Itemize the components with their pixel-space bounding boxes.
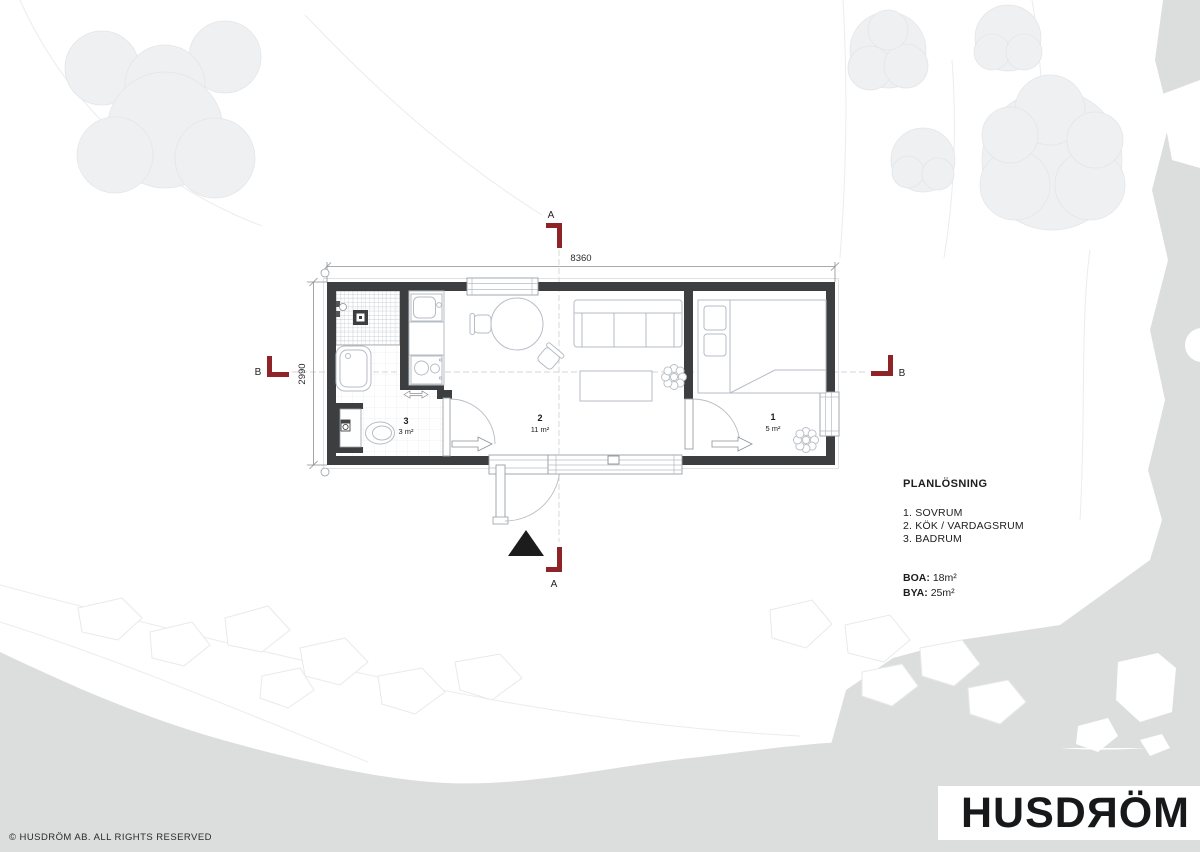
svg-text:1: 1	[770, 412, 775, 422]
room-label-2: 2 11 m²	[531, 413, 550, 434]
boa-value: 18m²	[933, 572, 957, 584]
shower	[335, 291, 400, 345]
legend-item: 1. SOVRUM	[903, 507, 1123, 520]
section-marker-b-left: B	[255, 356, 289, 378]
logo-text: HUSDЯÖM	[961, 789, 1190, 838]
boa-label: BOA:	[903, 572, 930, 584]
coffee-table	[580, 371, 652, 401]
toilet	[366, 422, 395, 444]
copyright: © HUSDRÖM AB. ALL RIGHTS RESERVED	[9, 832, 212, 843]
legend-areas: BOA:18m² BYA:25m²	[903, 571, 1123, 601]
cooktop	[411, 356, 442, 384]
svg-text:A: A	[548, 210, 555, 221]
svg-text:B: B	[255, 367, 262, 378]
site-plan-page: 1 5 m² 2 11 m² 3 3 m² 8360 2990 A	[0, 0, 1200, 852]
sofa	[574, 300, 682, 347]
kitchen-sink	[411, 294, 442, 321]
door-swing-arc	[450, 399, 495, 444]
washing-machine	[334, 403, 363, 453]
chair	[535, 342, 565, 372]
entrance-triangle-icon	[508, 530, 544, 556]
plant-icon	[662, 365, 687, 390]
dimension-left	[307, 278, 327, 469]
area-bya: BYA:25m²	[903, 586, 1123, 601]
window-bottom	[548, 455, 682, 474]
svg-text:11 m²: 11 m²	[531, 425, 550, 434]
window-right	[820, 392, 839, 436]
door-swing-arc	[693, 399, 740, 446]
window-handle-icon	[608, 456, 619, 464]
legend-items: 1. SOVRUM 2. KÖK / VARDAGSRUM 3. BADRUM	[903, 507, 1123, 546]
tree-icon	[848, 5, 1125, 230]
slide-arrow-icon	[712, 437, 752, 451]
legend-item: 3. BADRUM	[903, 533, 1123, 546]
section-marker-b-right: B	[871, 355, 906, 379]
tree-canopies	[65, 5, 1125, 230]
section-marker-a-bottom: A	[546, 547, 562, 590]
svg-text:3: 3	[403, 416, 408, 426]
chair	[470, 314, 491, 335]
plant-icon	[794, 428, 819, 453]
svg-text:5 m²: 5 m²	[766, 424, 782, 433]
bathtub	[336, 346, 371, 391]
section-marker-a-top: A	[546, 210, 562, 248]
bed	[698, 300, 826, 393]
svg-text:B: B	[899, 368, 906, 379]
slide-arrow-icon	[452, 437, 492, 451]
svg-text:A: A	[551, 579, 558, 590]
window-top	[467, 278, 538, 295]
svg-text:3 m²: 3 m²	[399, 427, 415, 436]
legend-title: PLANLÖSNING	[903, 478, 1123, 490]
bya-value: 25m²	[931, 587, 955, 599]
bedroom-door	[685, 399, 752, 451]
bya-label: BYA:	[903, 587, 928, 599]
floor-plan-drawing: 1 5 m² 2 11 m² 3 3 m² 8360 2990 A	[0, 0, 1200, 852]
dimension-height-label: 2990	[297, 363, 308, 384]
floor-plan: 1 5 m² 2 11 m² 3 3 m² 8360 2990 A	[255, 210, 906, 590]
entrance-door-leaf	[496, 465, 505, 520]
legend: PLANLÖSNING 1. SOVRUM 2. KÖK / VARDAGSRU…	[903, 478, 1123, 601]
logo: HUSDЯÖM	[938, 786, 1200, 840]
dining-table	[491, 298, 543, 350]
legend-item: 2. KÖK / VARDAGSRUM	[903, 520, 1123, 533]
room-label-1: 1 5 m²	[766, 412, 782, 433]
area-boa: BOA:18m²	[903, 571, 1123, 586]
dimension-width-label: 8360	[570, 253, 591, 264]
svg-text:2: 2	[537, 413, 542, 423]
